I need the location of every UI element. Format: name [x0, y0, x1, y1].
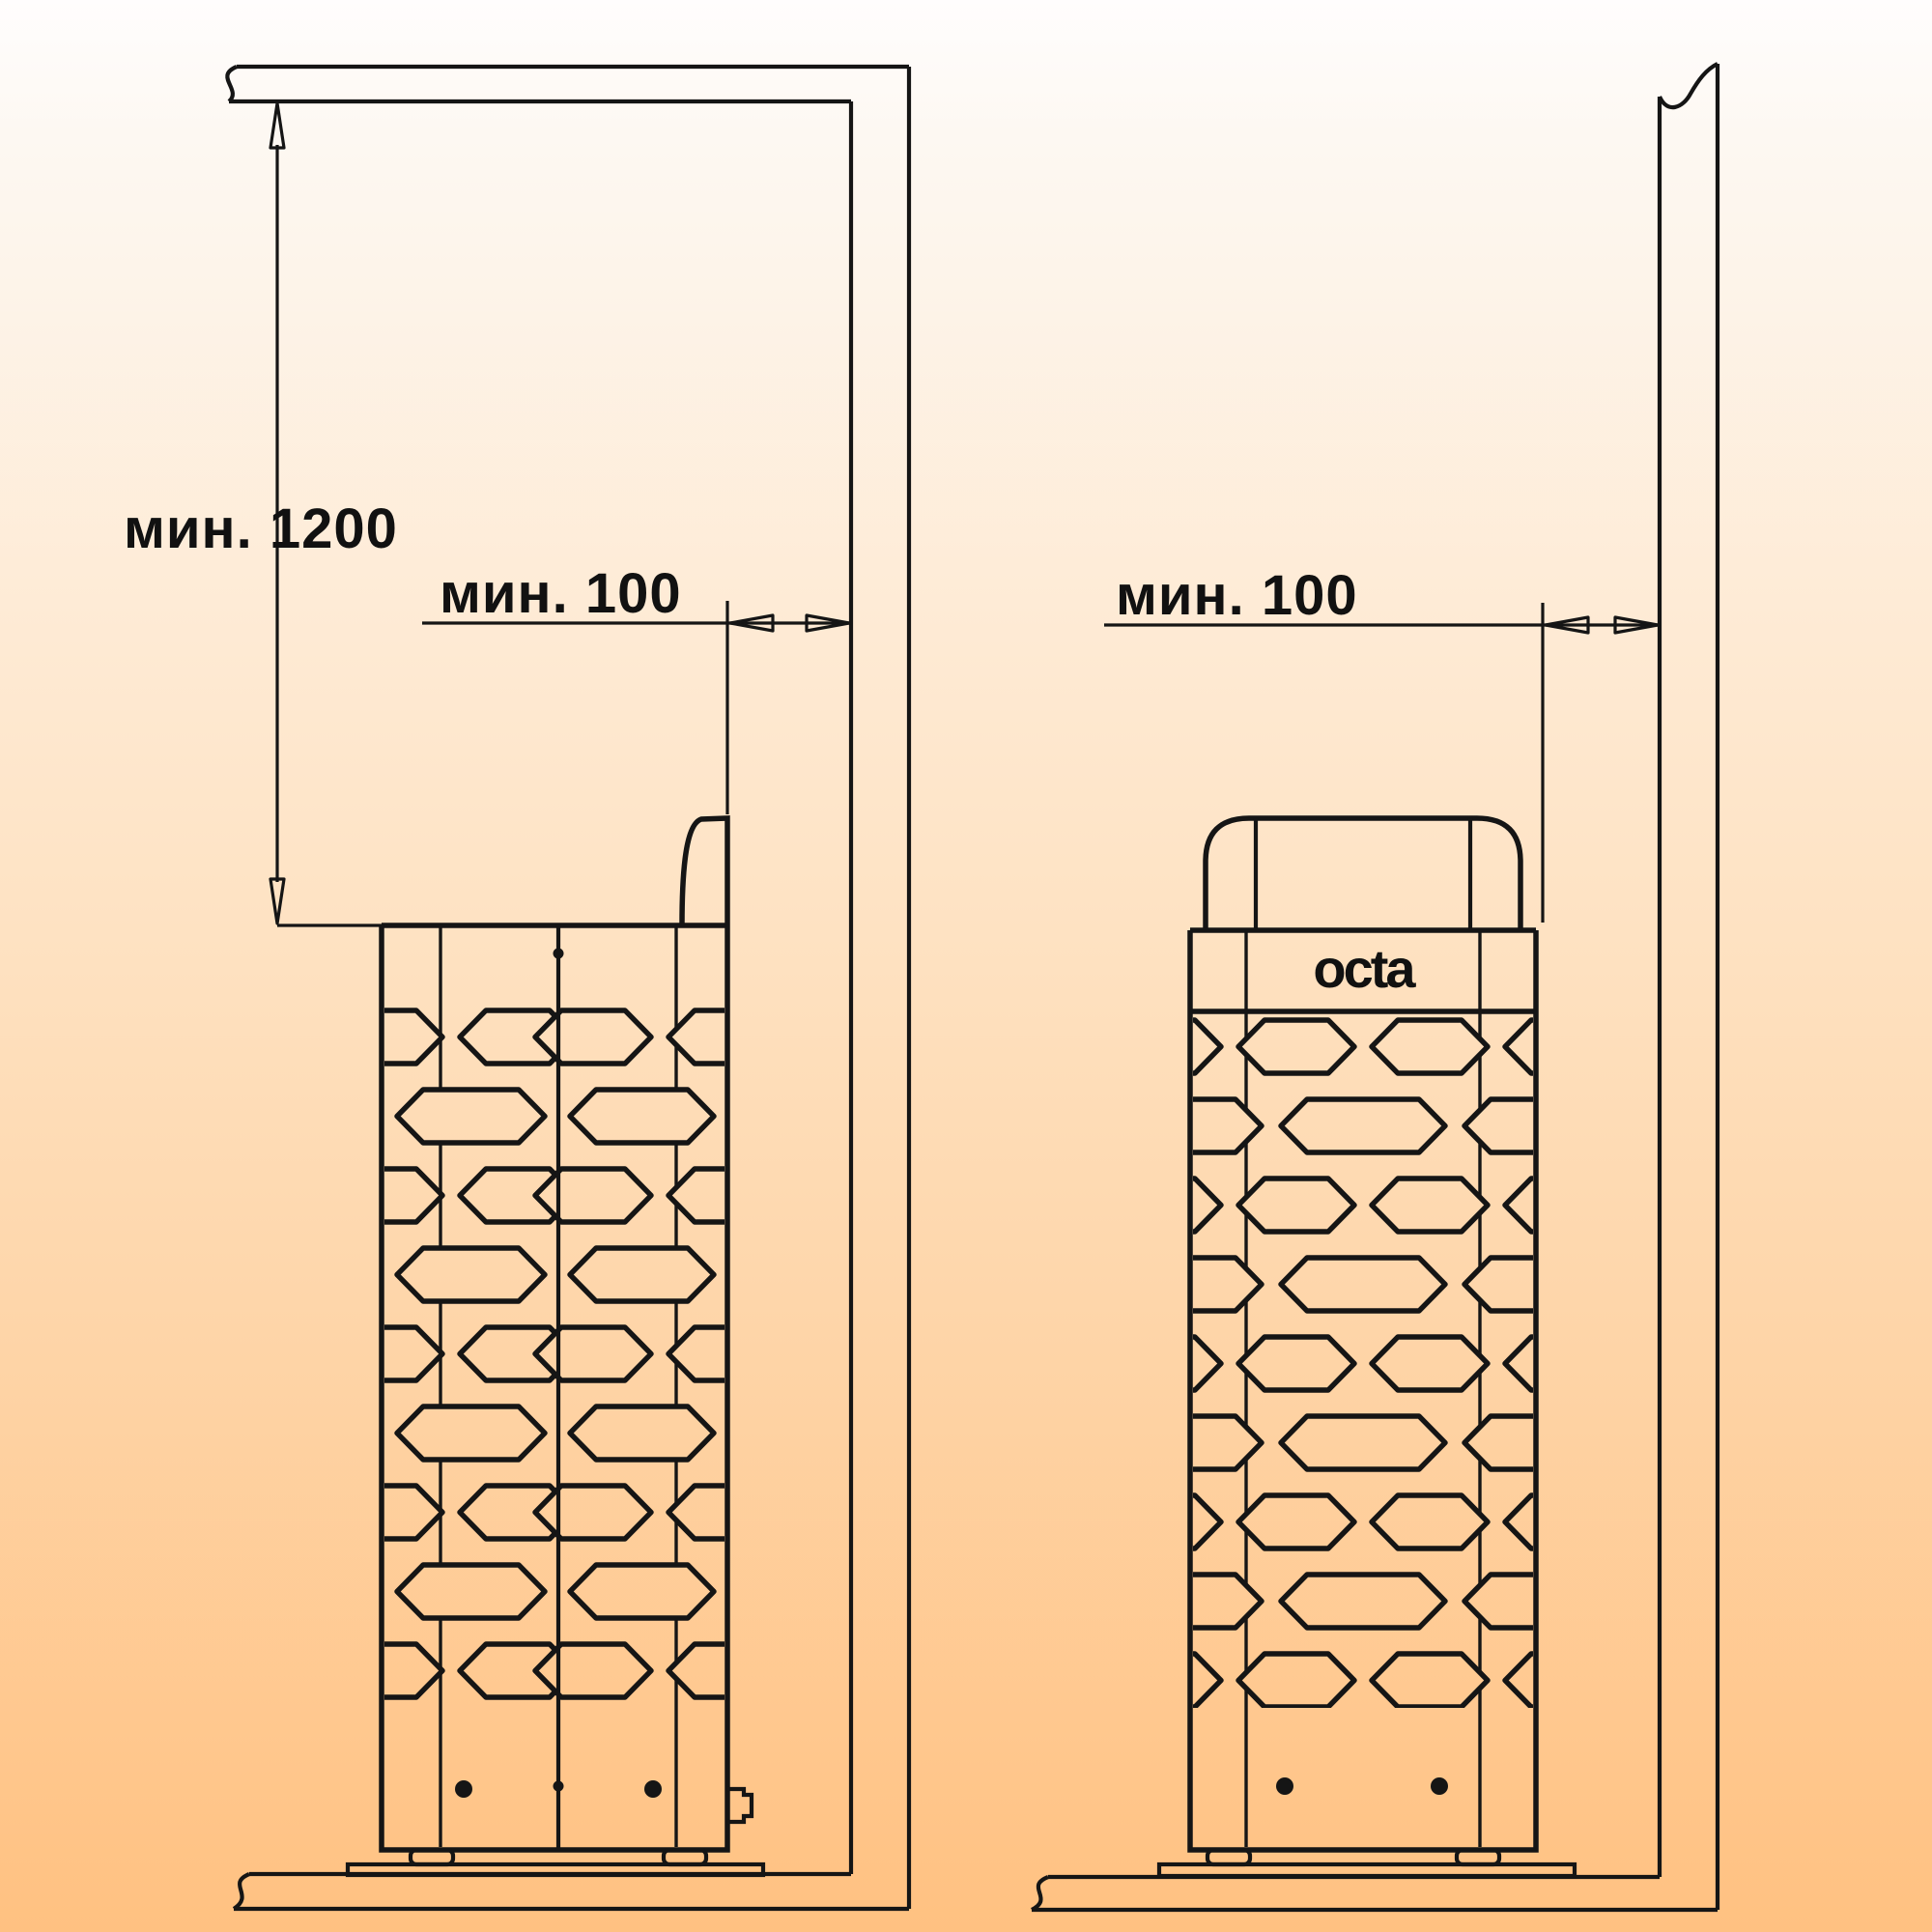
dimension-label: мин. 100	[440, 562, 682, 625]
dimension-label: мин. 100	[1116, 564, 1358, 627]
grille-slot	[1281, 1575, 1445, 1628]
grille-slot	[535, 1327, 651, 1380]
brand-logo: octa	[1313, 938, 1416, 999]
grille-slot	[570, 1565, 714, 1618]
grille-slot	[1372, 1337, 1488, 1390]
grille-slot	[570, 1248, 714, 1301]
grille-slot	[1238, 1654, 1354, 1707]
grille-slot	[397, 1565, 545, 1618]
grille-slot	[1238, 1337, 1354, 1390]
screw-icon	[1431, 1777, 1448, 1795]
screw-icon	[1276, 1777, 1293, 1795]
grille-slot	[397, 1248, 545, 1301]
screw-icon	[455, 1780, 472, 1798]
grille-slot	[1281, 1099, 1445, 1152]
grille-slot	[1372, 1495, 1488, 1548]
grille-slot	[535, 1010, 651, 1064]
dimension-label: мин. 1200	[124, 497, 398, 560]
grille-slot	[1238, 1020, 1354, 1073]
grille-slot	[1281, 1416, 1445, 1469]
rivet-icon	[554, 1781, 564, 1792]
grille-slot	[397, 1090, 545, 1143]
grille-slot	[1372, 1654, 1488, 1707]
grille-slot	[535, 1644, 651, 1697]
background	[0, 0, 1932, 1932]
installation-clearance-diagram: мин. 1200 мин. 100	[0, 0, 1932, 1932]
grille-slot	[535, 1169, 651, 1222]
grille-slot	[1372, 1020, 1488, 1073]
grille-slot	[397, 1406, 545, 1460]
grille-slot	[535, 1486, 651, 1539]
grille-slot	[1372, 1179, 1488, 1232]
grille-slot	[570, 1406, 714, 1460]
grille-slot	[1281, 1258, 1445, 1311]
grille-slot	[570, 1090, 714, 1143]
grille-slot	[1238, 1495, 1354, 1548]
rivet-icon	[554, 949, 564, 959]
grille-slot	[1238, 1179, 1354, 1232]
screw-icon	[644, 1780, 662, 1798]
